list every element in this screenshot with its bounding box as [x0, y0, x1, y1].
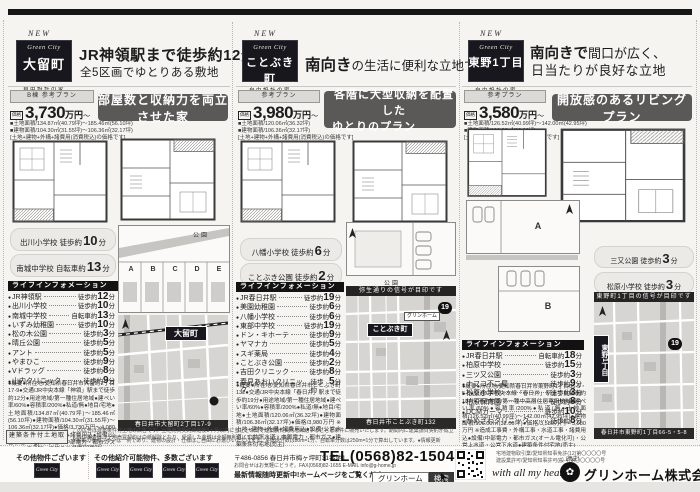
- life-place: ことぶき公園: [240, 360, 282, 368]
- life-unit: 分: [109, 294, 116, 302]
- life-mode: 徒歩約: [309, 369, 329, 377]
- seller-note: (売主): [566, 455, 579, 462]
- greencity-logo: Green City 東野1丁目: [468, 40, 524, 82]
- site-plan-a: A: [466, 200, 580, 254]
- catch-copy: 各階に大型収納を配置した ゆとりのプラン: [324, 91, 456, 128]
- life-info-title: ライフインフォメーション: [236, 282, 344, 292]
- life-mode: 徒歩約: [78, 294, 98, 302]
- top-rule: [8, 9, 692, 15]
- park-label: 公園: [193, 230, 209, 239]
- headline-strong: 南向き: [305, 57, 352, 74]
- headline-sub: 日当たりが良好な立地: [531, 60, 666, 79]
- property-tile: Green City: [34, 463, 60, 478]
- life-place: 美園幼稚園: [240, 304, 275, 312]
- lot-a: A: [125, 266, 137, 273]
- catch-copy: 開放感のあるリビングプラン: [552, 94, 692, 121]
- life-unit: 分: [109, 303, 116, 311]
- area-map: 19 ことぶき町 グリンホーム: [346, 296, 456, 418]
- others-title-1: その他物件ございます: [16, 453, 86, 463]
- cut-line-2: [459, 22, 460, 442]
- badge-place: 南城中学校: [16, 263, 54, 274]
- life-unit: 分: [335, 360, 342, 368]
- cursor-icon: [440, 473, 448, 482]
- headline: JR神領駅まで徒歩約12分: [79, 44, 256, 65]
- life-unit: 分: [109, 331, 116, 339]
- cut-line-left: [3, 20, 4, 440]
- badge-min: 2: [318, 268, 325, 283]
- route-19-sign: 19: [668, 338, 682, 350]
- badge-mode: 徒歩約: [640, 256, 661, 266]
- life-unit: 分: [335, 304, 342, 312]
- life-unit: 分: [109, 313, 116, 321]
- price-value: 3,980: [253, 103, 293, 123]
- access-badge-2: 松原小学校 徒歩約3分: [594, 272, 694, 294]
- life-place: 吉田クリニック: [240, 369, 289, 377]
- badge-place: 松原小学校: [607, 282, 642, 292]
- price-label: 価格: [10, 111, 23, 120]
- badge-min: 13: [87, 259, 101, 274]
- price-tilde: 〜: [83, 111, 90, 121]
- map-pin: ことぶき町: [368, 324, 412, 336]
- badge-unit: 分: [99, 237, 107, 248]
- area-map: 大留町: [118, 315, 228, 420]
- price: 価格 3,980 万円 〜: [238, 103, 318, 123]
- catch-line: 部屋数と収納力を両立させた家: [98, 91, 228, 125]
- life-mode: 自転車約: [538, 353, 564, 361]
- map-pin: 東野1丁目: [594, 336, 608, 382]
- life-place: 南城中学校: [12, 313, 47, 321]
- life-place: 東部中学校: [240, 323, 275, 331]
- compass-icon: [442, 330, 451, 342]
- life-place: Vドラッグ: [12, 368, 45, 376]
- lot-d: D: [191, 266, 203, 273]
- life-place: 柏原中学校: [466, 362, 501, 370]
- greencity-logo: Green City 大留町: [16, 40, 72, 82]
- catch-copy: 部屋数と収納力を両立させた家: [98, 94, 228, 121]
- life-place: 晴丘公園: [12, 340, 40, 348]
- catch-line: 開放感のあるリビングプラン: [552, 91, 692, 125]
- life-unit: 分: [335, 314, 342, 322]
- lot-b: B: [541, 301, 555, 311]
- life-mode: 徒歩約: [83, 331, 103, 339]
- life-info-list: ●JR神領駅徒歩約12分 ●出川小学校徒歩約10分 ●南城中学校自転車約13分 …: [8, 293, 115, 386]
- price: 価格 3,580 万円 〜: [464, 103, 544, 123]
- life-mode: 徒歩約: [309, 332, 329, 340]
- floor-plan-2f: [120, 138, 216, 222]
- life-mode: 徒歩約: [304, 323, 324, 331]
- life-mode: 徒歩約: [304, 295, 324, 303]
- brand-label: Green City: [468, 40, 524, 51]
- badge-min: 6: [315, 243, 322, 258]
- life-unit: 分: [576, 372, 583, 380]
- flyer-sheet: NEW Green City 大留町 自由設計の家 分譲住宅 JR神領駅まで徒歩…: [0, 0, 700, 492]
- compass-icon: [348, 228, 357, 240]
- badge-min: 10: [83, 233, 97, 248]
- floor-plan-1f: [466, 128, 548, 198]
- life-unit: 分: [576, 353, 583, 361]
- property-tile: Green City: [195, 463, 219, 478]
- compass-icon: [565, 204, 574, 216]
- life-mode: 徒歩約: [83, 340, 103, 348]
- access-badge-1: 出川小学校 徒歩約10分: [10, 228, 116, 251]
- life-unit: 分: [335, 332, 342, 340]
- lot-e: E: [213, 266, 225, 273]
- life-mode: 徒歩約: [83, 359, 103, 367]
- life-mode: 徒歩約: [309, 360, 329, 368]
- price-label: 価格: [464, 111, 477, 120]
- badge-place: 三又公園: [610, 256, 638, 266]
- life-mode: 自転車約: [71, 313, 97, 321]
- others-title-2: その他紹介可能物件、多数ございます: [94, 453, 213, 463]
- greencity-logo: Green City ことぶき町: [242, 40, 298, 82]
- property-outline: ●概要●所在地/愛知県春日井市東野町1丁目66-5・5-8●交通/JR中央本線「…: [462, 384, 586, 450]
- zip: 〒486-0856: [234, 455, 268, 462]
- life-unit: 分: [335, 323, 342, 331]
- badge-unit: 分: [102, 263, 110, 274]
- life-place: 松の木公園: [12, 331, 47, 339]
- life-unit: 分: [576, 362, 583, 370]
- divider: [462, 86, 692, 87]
- badge-place: 八幡小学校: [252, 247, 290, 258]
- footer: その他物件ございます Green City その他紹介可能物件、多数ございます …: [0, 447, 700, 482]
- area-map: 19 東野1丁目: [594, 302, 694, 428]
- access-badge-2: 南城中学校 自転車約13分: [10, 254, 116, 277]
- plan-tag: B棟 参考プラン: [10, 90, 94, 103]
- life-mode: 徒歩約: [309, 341, 329, 349]
- price-tilde: 〜: [537, 111, 544, 121]
- new-label: NEW: [480, 29, 503, 38]
- life-mode: 徒歩約: [83, 368, 103, 376]
- life-place: アント: [12, 350, 33, 358]
- site-plan: [346, 222, 456, 276]
- badge-mode: 徒歩約: [60, 237, 83, 248]
- floor-plan-2f: [352, 140, 452, 224]
- headline-rest: 間口が広く、: [588, 46, 666, 61]
- access-badge-1: 三又公園 徒歩約3分: [594, 246, 694, 268]
- badge-min: 3: [662, 251, 669, 266]
- brand-label: Green City: [242, 40, 298, 51]
- map-header: 弥生通りの信号が目印です: [346, 286, 456, 296]
- map-caption: 春日井市東野町1丁目66-5・5-8: [594, 428, 694, 439]
- floor-plan-1f: [240, 140, 340, 224]
- price-unit: 万円: [519, 108, 537, 121]
- price-unit: 万円: [293, 108, 311, 121]
- price: 価格 3,730 万円 〜: [10, 103, 90, 123]
- badge-min: 3: [666, 277, 673, 292]
- property-tile: Green City: [129, 463, 153, 478]
- property-tile: Green City: [162, 463, 186, 478]
- life-place: JR神領駅: [12, 294, 42, 302]
- price-label: 価格: [238, 111, 251, 120]
- lot-b: B: [147, 266, 159, 273]
- life-mode: 徒歩約: [78, 303, 98, 311]
- divider: [8, 86, 230, 87]
- price-value: 3,730: [25, 103, 65, 123]
- slogan: with all my heart: [492, 467, 567, 479]
- brand-label: Green City: [16, 40, 72, 51]
- life-mode: 徒歩約: [83, 350, 103, 358]
- life-unit: 分: [109, 359, 116, 367]
- badge-unit: 分: [674, 282, 681, 292]
- life-unit: 分: [335, 341, 342, 349]
- life-place: 出川小学校: [12, 303, 47, 311]
- site-plan: 公園 A B C D E: [118, 225, 230, 313]
- catch-line: 各階に大型収納を配置した: [332, 86, 456, 118]
- property-tile: Green City: [96, 463, 120, 478]
- lot-a: A: [531, 221, 545, 231]
- company-crest-icon: ✿: [560, 462, 580, 482]
- lot-c: C: [169, 266, 181, 273]
- life-mode: 徒歩約: [309, 304, 329, 312]
- cut-line-right: [696, 20, 697, 440]
- life-place: JR春日井駅: [240, 295, 277, 303]
- life-place: 三ツ又公園: [466, 372, 501, 380]
- town-label: 大留町: [16, 54, 72, 73]
- badge-mode: 自転車約: [56, 263, 86, 274]
- badge-unit: 分: [671, 256, 678, 266]
- life-place: ドン・キホーテ: [240, 332, 289, 340]
- headline-sub: 全5区画でゆとりある敷地: [80, 64, 219, 80]
- price-value: 3,580: [479, 103, 519, 123]
- life-unit: 分: [335, 295, 342, 303]
- badge-place: 出川小学校: [20, 237, 58, 248]
- route-19-sign: 19: [438, 302, 452, 314]
- life-info-title: ライフインフォメーション: [462, 340, 584, 350]
- life-unit: 分: [335, 351, 342, 359]
- footer-divider: [88, 452, 89, 479]
- town-label: 東野1丁目: [468, 54, 524, 70]
- life-unit: 分: [109, 340, 116, 348]
- town-label: ことぶき町: [242, 54, 298, 86]
- life-mode: 徒歩約: [309, 351, 329, 359]
- life-place: 八幡小学校: [240, 314, 275, 322]
- badge-mode: 徒歩約: [291, 247, 314, 258]
- life-unit: 分: [109, 368, 116, 376]
- map-pin: 大留町: [166, 327, 206, 340]
- company-map-label: グリンホーム: [404, 312, 440, 321]
- access-badge-1: 八幡小学校 徒歩約6分: [240, 238, 342, 261]
- life-place: やまひこ: [12, 359, 40, 367]
- homepage-note: 最新情報随時更新中!ホームページをご覧ください!!: [234, 470, 395, 480]
- life-place: いずみ幼稚園: [12, 322, 54, 330]
- catch-line: ゆとりのプラン: [332, 118, 416, 134]
- map-header: 東野町1丁目の信号が目印です: [594, 292, 694, 302]
- site-road: [466, 255, 578, 260]
- life-mode: 徒歩約: [550, 372, 570, 380]
- life-mode: 徒歩約: [78, 322, 98, 330]
- new-label: NEW: [254, 29, 277, 38]
- legal-badge: 建築条件付土地取引: [6, 430, 68, 444]
- cut-line-1: [232, 22, 233, 442]
- life-unit: 分: [335, 369, 342, 377]
- plan-tag: 参考プラン: [238, 90, 320, 103]
- life-unit: 分: [109, 350, 116, 358]
- life-mode: 徒歩約: [545, 362, 565, 370]
- compass-icon: [121, 319, 130, 331]
- plan-tag: 参考プラン: [464, 90, 546, 103]
- qr-code: [455, 449, 486, 480]
- new-label: NEW: [28, 29, 51, 38]
- life-place: スギ薬局: [240, 351, 268, 359]
- license-line-2: 建設業許可/愛知県知事許可(般-4)第〇〇〇〇〇号: [496, 457, 605, 464]
- badge-mode: 徒歩約: [644, 282, 665, 292]
- life-place: JR春日井駅: [466, 353, 503, 361]
- site-plan-b: B: [498, 266, 580, 332]
- life-info-list: ●JR春日井駅徒歩約19分 ●美園幼稚園徒歩約6分 ●八幡小学校徒歩約6分 ●東…: [236, 294, 341, 395]
- price-tilde: 〜: [311, 111, 318, 121]
- license-line-1: 宅地建物取引業/愛知県知事免許(12)第〇〇〇〇号: [496, 450, 606, 457]
- life-place: ヤマナカ: [240, 341, 268, 349]
- compass-icon: [598, 306, 607, 318]
- price-unit: 万円: [65, 108, 83, 121]
- life-info-title: ライフインフォメーション: [8, 281, 118, 291]
- badge-unit: 分: [323, 247, 331, 258]
- floor-plan-1f: [12, 140, 108, 224]
- life-unit: 分: [109, 322, 116, 330]
- page-margin: [0, 482, 700, 492]
